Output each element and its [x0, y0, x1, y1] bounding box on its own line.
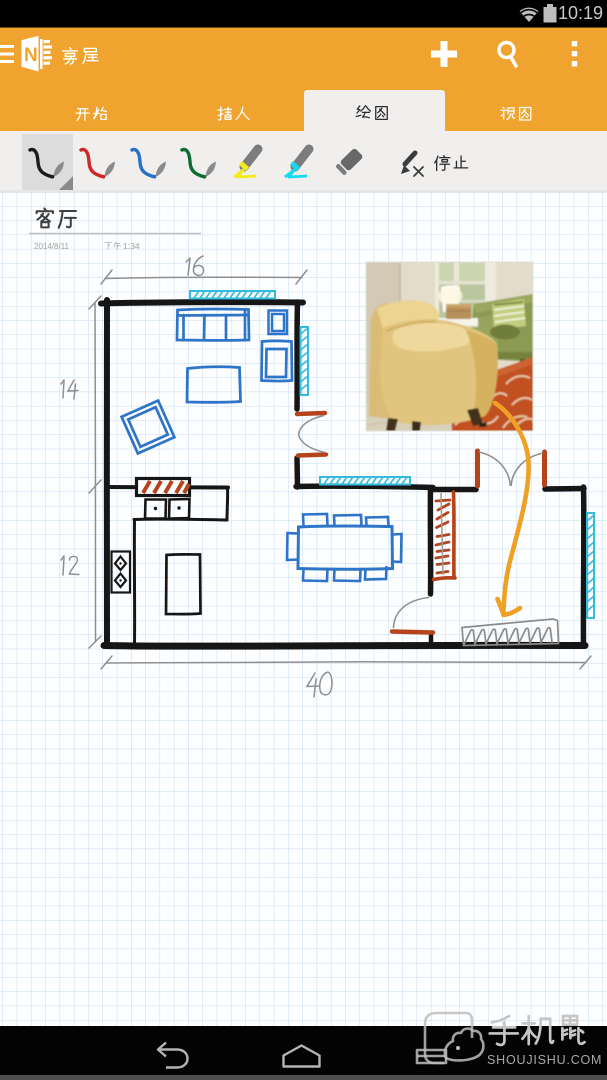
svg-text:SHOUJISHU.COM: SHOUJISHU.COM — [487, 1053, 602, 1067]
svg-text:N: N — [24, 45, 38, 66]
svg-text:2014/8/11: 2014/8/11 — [34, 242, 70, 251]
svg-text:1:34: 1:34 — [123, 241, 140, 251]
